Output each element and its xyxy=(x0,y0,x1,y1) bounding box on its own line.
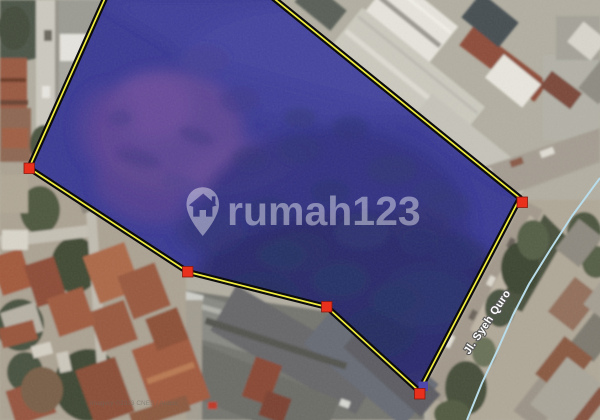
svg-text:rumah123: rumah123 xyxy=(227,188,421,234)
svg-text:Imagery ©2023 CNES / Airbus: Imagery ©2023 CNES / Airbus xyxy=(90,399,179,407)
